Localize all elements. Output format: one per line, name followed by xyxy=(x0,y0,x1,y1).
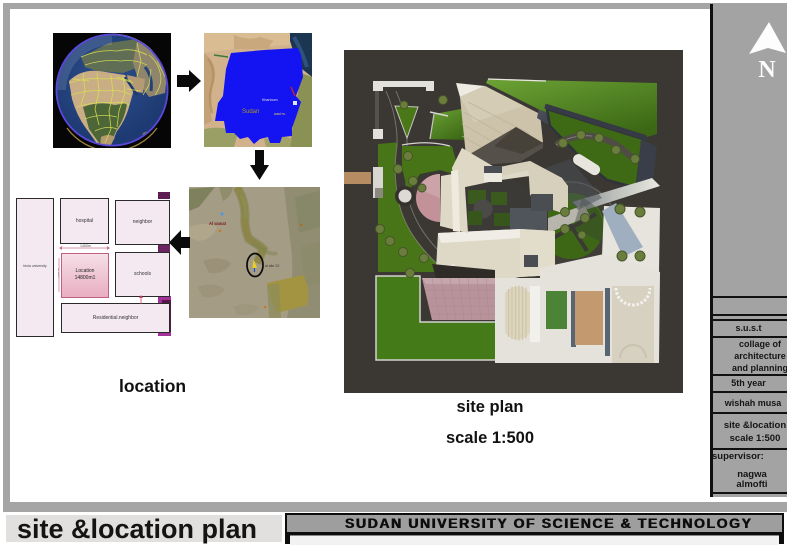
svg-text:Sudan: Sudan xyxy=(242,109,259,115)
svg-text:al site 22: al site 22 xyxy=(265,264,279,268)
svg-text:1400m: 1400m xyxy=(80,244,91,248)
svg-text:150 m: 150 m xyxy=(58,268,60,278)
svg-text:Khartoum: Khartoum xyxy=(262,98,278,102)
svg-text:Al wasat: Al wasat xyxy=(209,221,227,226)
svg-text:N: N xyxy=(758,57,776,83)
svg-text:wad m.: wad m. xyxy=(274,112,286,116)
